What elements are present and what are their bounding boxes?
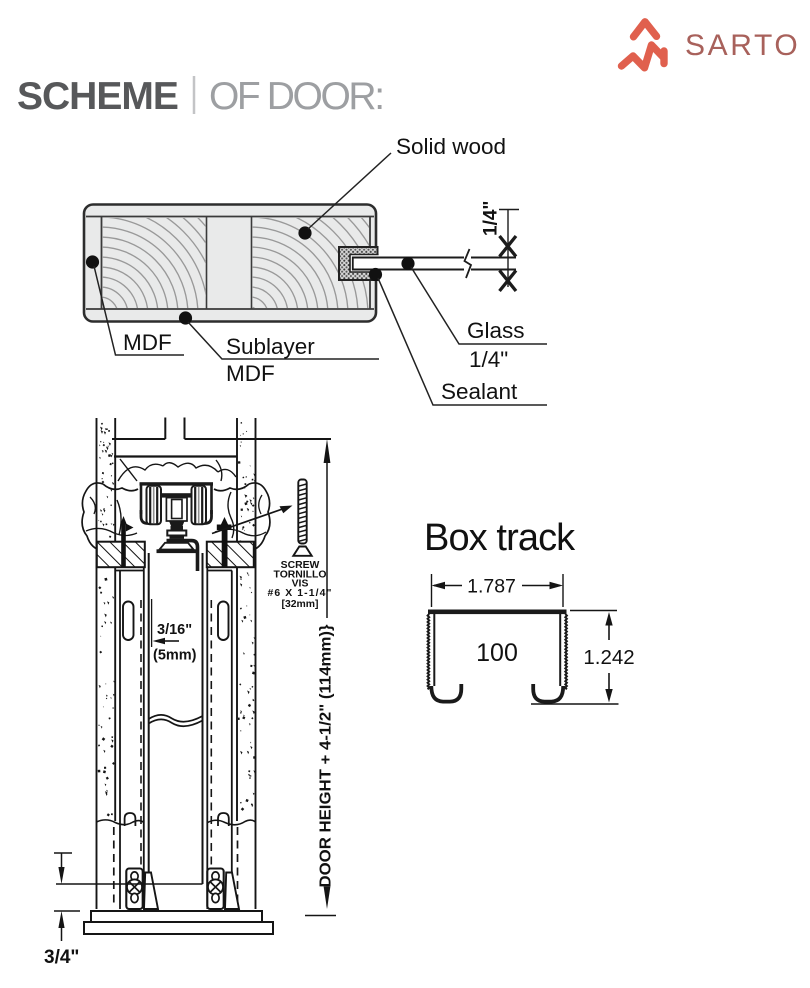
svg-text:DOOR HEIGHT + 4-1/2" (114m: DOOR HEIGHT + 4-1/2" (114mm)}: [318, 625, 335, 888]
svg-text:MDF: MDF: [226, 361, 275, 386]
svg-text:OF DOOR:: OF DOOR:: [209, 75, 383, 118]
svg-text:1/4": 1/4": [481, 201, 502, 236]
svg-text:MDF: MDF: [123, 330, 172, 355]
svg-text:SCHEME: SCHEME: [17, 75, 178, 118]
svg-text:Solid wood: Solid wood: [396, 134, 506, 159]
svg-text:3/4": 3/4": [44, 947, 79, 968]
svg-text:(5mm): (5mm): [153, 648, 197, 664]
svg-text:1/4": 1/4": [469, 347, 508, 372]
svg-text:100: 100: [476, 639, 518, 667]
svg-text:Glass: Glass: [467, 318, 525, 343]
svg-text:Sublayer: Sublayer: [226, 334, 315, 359]
svg-text:3/16": 3/16": [157, 622, 192, 638]
svg-text:1.787: 1.787: [467, 576, 516, 598]
svg-text:1.242: 1.242: [583, 646, 634, 669]
svg-text:SARTO: SARTO: [685, 29, 800, 62]
svg-text:#6 X 1-1/4": #6 X 1-1/4": [268, 588, 333, 599]
svg-text:Box track: Box track: [424, 517, 576, 559]
svg-text:[32mm]: [32mm]: [282, 599, 319, 610]
svg-text:Sealant: Sealant: [441, 379, 518, 404]
